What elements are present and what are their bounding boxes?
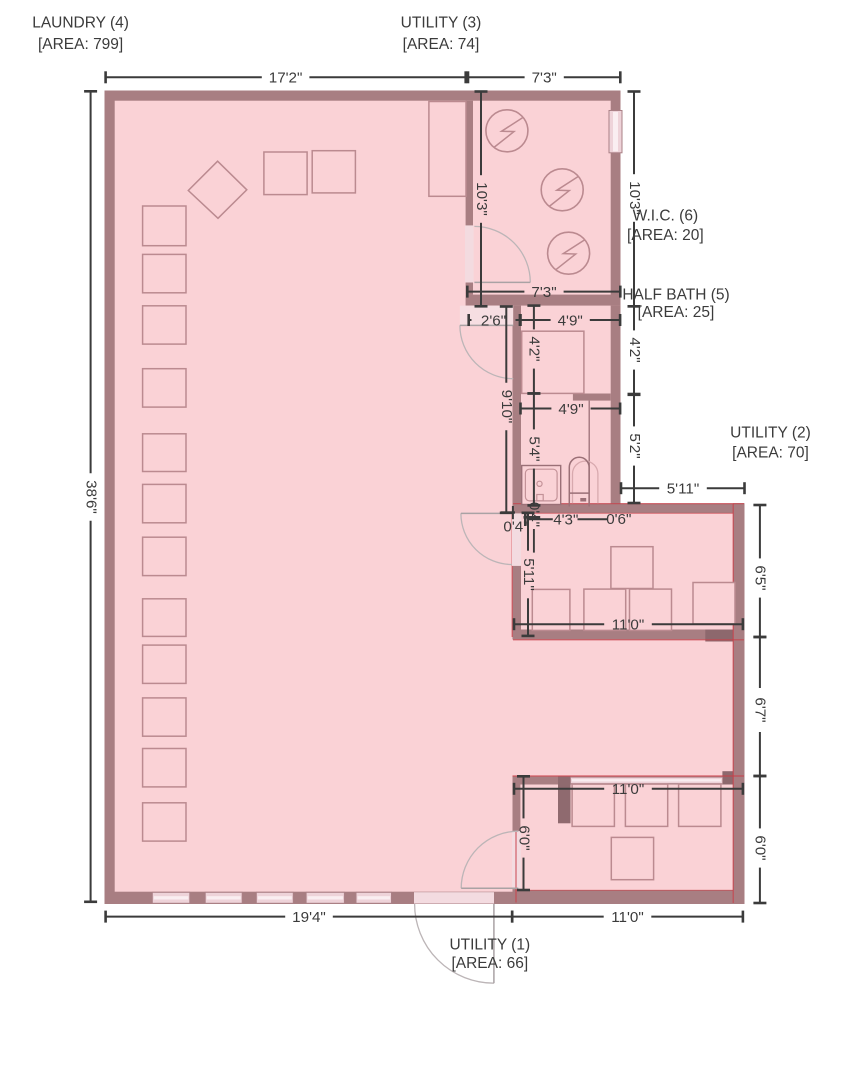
svg-text:7'3": 7'3" [532, 70, 557, 87]
svg-text:5'11": 5'11" [667, 481, 700, 498]
svg-text:6'0": 6'0" [515, 825, 532, 850]
svg-text:UTILITY (3): UTILITY (3) [401, 14, 482, 31]
svg-text:6'5": 6'5" [752, 565, 769, 590]
svg-text:UTILITY (2): UTILITY (2) [730, 425, 811, 442]
svg-text:LAUNDRY (4): LAUNDRY (4) [32, 14, 129, 31]
svg-text:[AREA: 70]: [AREA: 70] [732, 445, 809, 462]
svg-text:UTILITY (1): UTILITY (1) [449, 937, 530, 954]
svg-text:10'3": 10'3" [473, 182, 490, 216]
svg-text:2'6": 2'6" [481, 312, 506, 329]
svg-text:4'3": 4'3" [553, 512, 578, 529]
svg-text:0'4": 0'4" [503, 519, 528, 536]
svg-text:11'0": 11'0" [612, 781, 645, 798]
svg-text:11'0": 11'0" [611, 909, 644, 926]
svg-text:[AREA: 74]: [AREA: 74] [403, 36, 480, 53]
svg-text:0'4": 0'4" [526, 502, 543, 527]
svg-text:4'9": 4'9" [558, 312, 583, 329]
svg-text:0'6": 0'6" [606, 511, 631, 528]
svg-text:38'6": 38'6" [82, 480, 99, 514]
svg-text:HALF BATH (5): HALF BATH (5) [622, 287, 729, 304]
svg-text:4'9": 4'9" [558, 401, 583, 418]
svg-text:W.I.C. (6): W.I.C. (6) [633, 208, 698, 225]
svg-text:5'11": 5'11" [520, 558, 537, 591]
svg-text:6'7": 6'7" [752, 697, 769, 722]
svg-text:5'2": 5'2" [626, 433, 643, 458]
svg-text:19'4": 19'4" [292, 909, 326, 926]
svg-text:5'4": 5'4" [526, 436, 543, 461]
svg-text:17'2": 17'2" [269, 70, 303, 87]
svg-text:7'3": 7'3" [531, 284, 556, 301]
svg-text:[AREA: 20]: [AREA: 20] [627, 227, 704, 244]
svg-text:9'10": 9'10" [498, 390, 515, 424]
svg-text:4'2": 4'2" [526, 336, 543, 361]
svg-text:6'0": 6'0" [752, 835, 769, 860]
svg-text:4'2": 4'2" [626, 337, 643, 362]
svg-text:11'0": 11'0" [612, 617, 645, 634]
svg-text:[AREA: 799]: [AREA: 799] [38, 36, 123, 53]
svg-text:[AREA: 66]: [AREA: 66] [451, 955, 528, 972]
svg-text:[AREA: 25]: [AREA: 25] [638, 304, 715, 321]
